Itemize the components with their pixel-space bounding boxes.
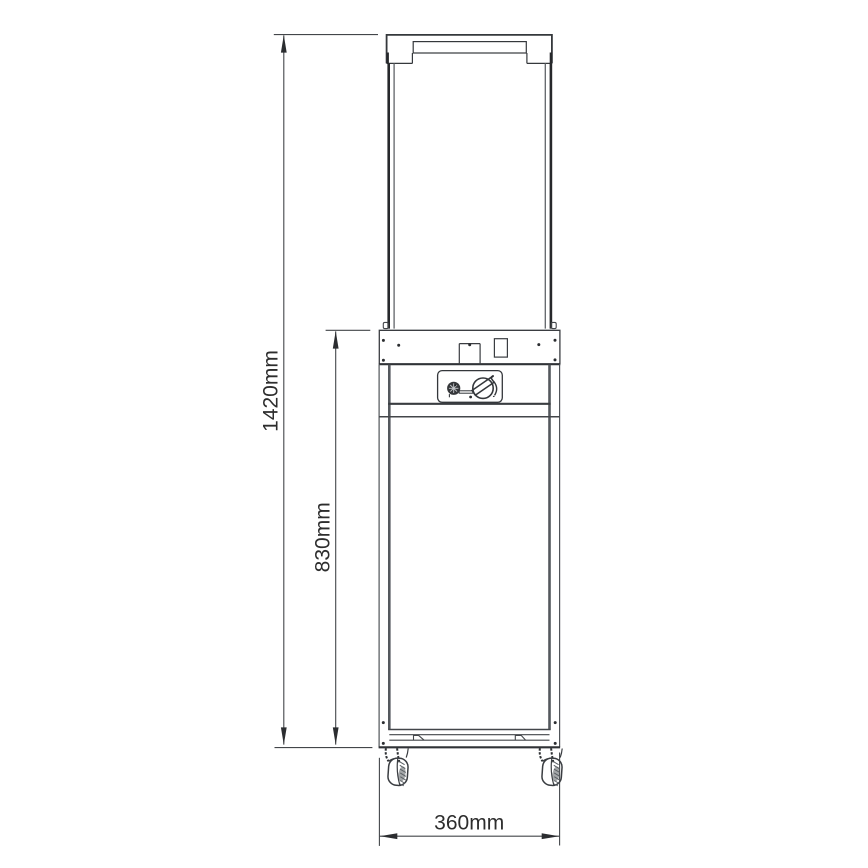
svg-text:360mm: 360mm: [434, 811, 504, 834]
svg-text:1420mm: 1420mm: [260, 350, 283, 432]
svg-text:830mm: 830mm: [312, 502, 335, 572]
